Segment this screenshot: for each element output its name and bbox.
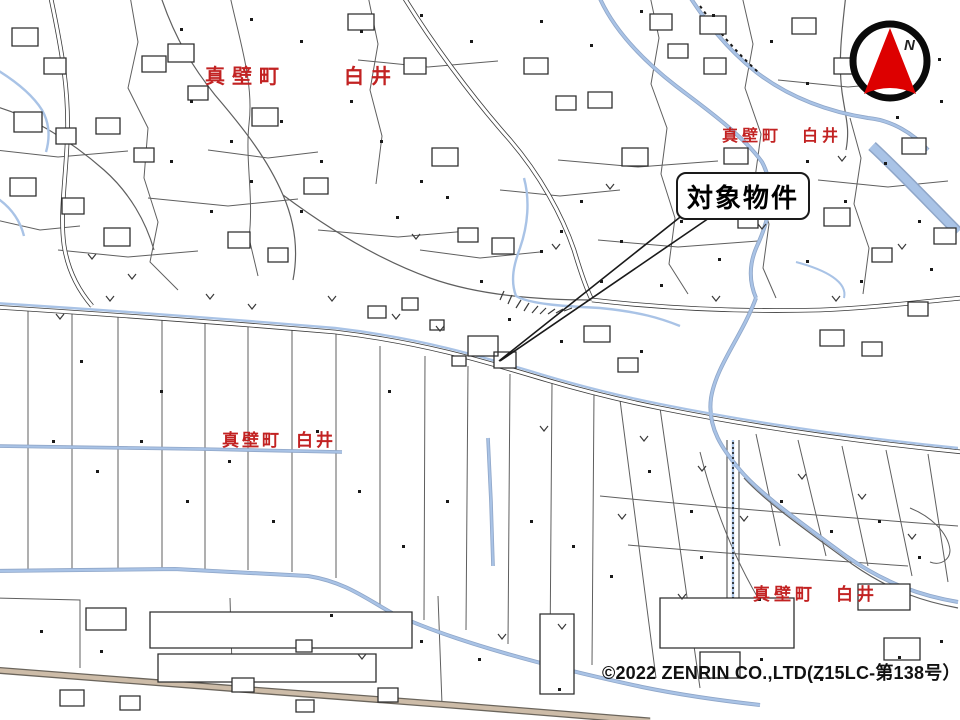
district-town-text: 真壁町 xyxy=(753,580,816,605)
zenrin-map-page: N 真壁町 白井 真壁町 白井 真壁町 白井 真壁町 白井 対象物件 ©2022… xyxy=(0,0,960,720)
district-area-text: 白井 xyxy=(802,122,842,146)
copyright-notice: ©2022 ZENRIN CO.,LTD(Z15LC-第138号） xyxy=(602,659,960,685)
district-area-text: 白井 xyxy=(344,60,398,89)
district-town-text: 真壁町 xyxy=(222,426,282,451)
target-property-callout: 対象物件 xyxy=(676,172,810,220)
district-label-middle-left: 真壁町 白井 xyxy=(222,426,336,451)
compass-north-label: N xyxy=(904,37,916,54)
compass: N xyxy=(853,24,927,98)
district-area-text: 白井 xyxy=(836,580,878,605)
district-town-text: 真壁町 xyxy=(205,60,286,89)
district-area-text: 白井 xyxy=(296,426,336,451)
district-label-bottom-right: 真壁町 白井 xyxy=(753,580,878,605)
district-town-text: 真壁町 xyxy=(722,122,782,146)
minor-roads-layer xyxy=(0,0,958,608)
district-label-top-left: 真壁町 白井 xyxy=(205,60,398,89)
map-canvas: N xyxy=(0,0,960,720)
district-label-top-right: 真壁町 白井 xyxy=(722,122,842,146)
target-property-callout-text: 対象物件 xyxy=(687,178,799,215)
